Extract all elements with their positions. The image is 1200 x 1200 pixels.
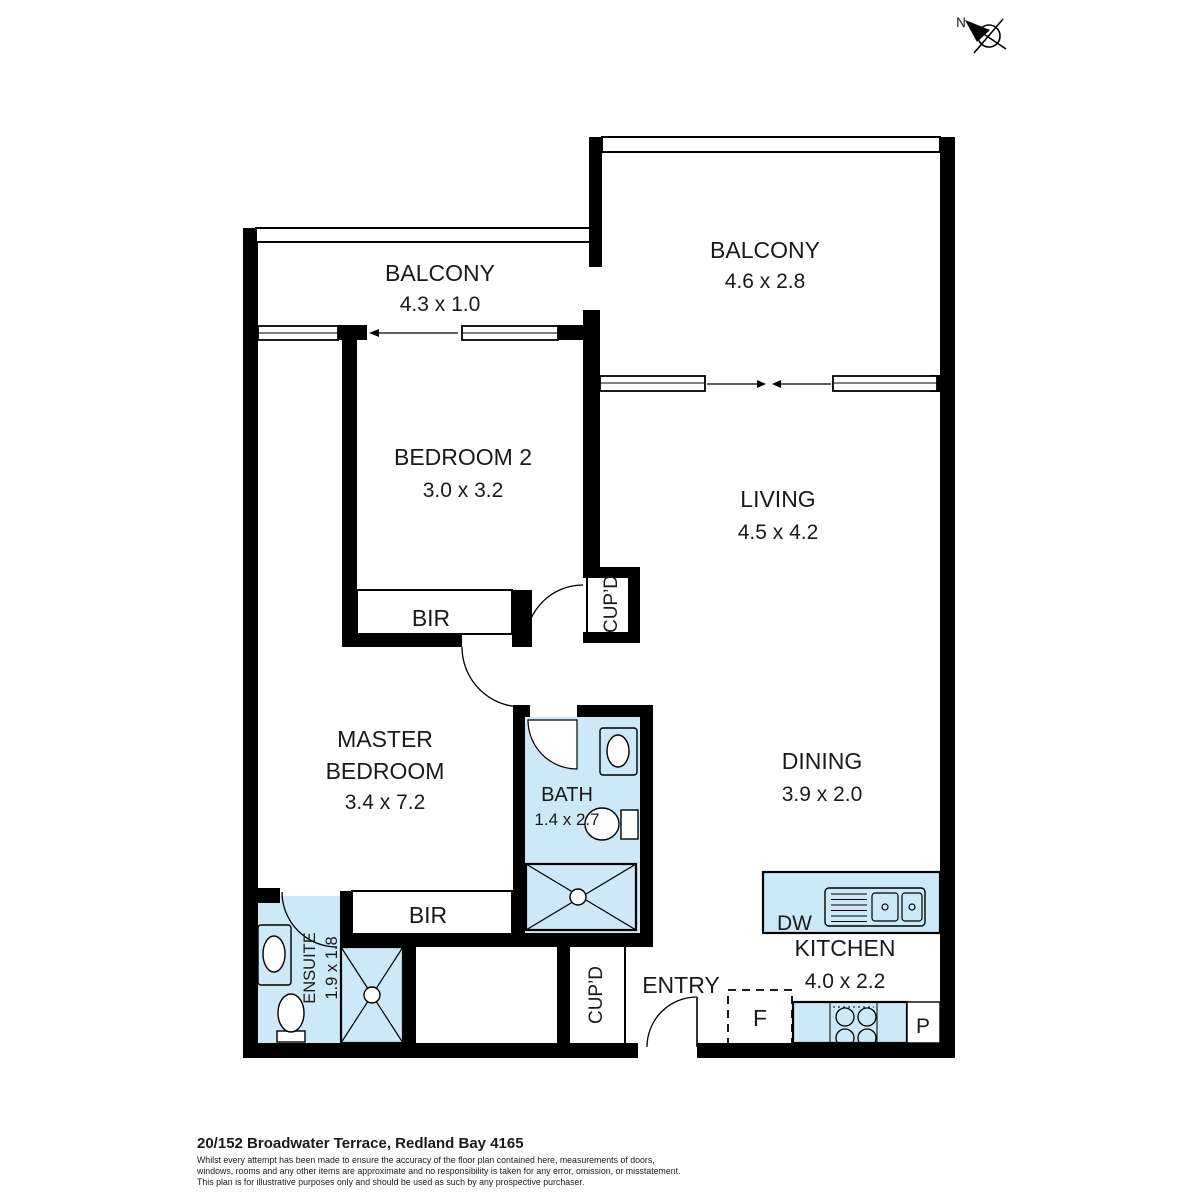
wall xyxy=(583,310,600,567)
room-kitchen-dims: 4.0 x 2.2 xyxy=(805,970,886,993)
room-bath-dims: 1.4 x 2.7 xyxy=(534,810,599,829)
floor-plan-svg: BALCONY 4.3 x 1.0 BALCONY 4.6 x 2.8 BEDR… xyxy=(0,0,1200,1200)
master-balcony-window-icon xyxy=(258,326,338,340)
room-balcony1-dims: 4.3 x 1.0 xyxy=(400,293,481,316)
wall xyxy=(342,633,462,647)
cupboard-upper-label: CUP’D xyxy=(601,575,622,633)
footer-disclaimer-line-3: This plan is for illustrative purposes o… xyxy=(197,1177,584,1187)
room-living-dims: 4.5 x 4.2 xyxy=(738,521,819,544)
wall xyxy=(628,567,640,643)
compass-icon: N xyxy=(956,15,1006,53)
ensuite-sink-icon xyxy=(258,925,291,985)
pantry-label: P xyxy=(916,1015,930,1038)
room-bedroom2-label: BEDROOM 2 xyxy=(394,444,532,470)
wall xyxy=(556,325,600,340)
sliding-door-arrow-icon xyxy=(757,380,766,388)
room-balcony2-dims: 4.6 x 2.8 xyxy=(725,270,806,293)
room-bedroom2-dims: 3.0 x 3.2 xyxy=(423,479,504,502)
sliding-door-arrow-icon xyxy=(772,380,781,388)
bath-shower-icon xyxy=(526,864,636,930)
wall xyxy=(340,891,352,947)
living-sliding-door-icon xyxy=(600,376,937,391)
fridge-label: F xyxy=(753,1005,767,1031)
wall xyxy=(340,933,653,947)
wall xyxy=(243,888,280,903)
bir-master-label: BIR xyxy=(409,902,447,928)
room-bath-label: BATH xyxy=(541,784,593,806)
room-dining-label: DINING xyxy=(782,748,863,774)
bath-sink-icon xyxy=(600,728,637,775)
dishwasher-label: DW xyxy=(777,912,812,935)
ensuite-shower-icon xyxy=(341,947,403,1043)
wall xyxy=(243,1043,638,1058)
sliding-door-arrow-icon xyxy=(369,329,379,337)
room-dining-dims: 3.9 x 2.0 xyxy=(782,783,863,806)
wall xyxy=(342,340,357,647)
footer-disclaimer-line-1: Whilst every attempt has been made to en… xyxy=(197,1155,655,1165)
bir-bedroom2-label: BIR xyxy=(412,605,450,631)
wall xyxy=(940,137,955,1058)
room-master-dims: 3.4 x 7.2 xyxy=(345,791,426,814)
door-arc-icon xyxy=(462,647,522,707)
room-master-label-line2: BEDROOM xyxy=(326,758,445,784)
wall xyxy=(403,947,416,1043)
wall xyxy=(243,228,258,1058)
room-master-label-line1: MASTER xyxy=(337,726,433,752)
room-ensuite-label: ENSUITE xyxy=(301,932,319,1004)
wall xyxy=(338,325,367,340)
floor-plan-page: BALCONY 4.3 x 1.0 BALCONY 4.6 x 2.8 BEDR… xyxy=(0,0,1200,1200)
room-ensuite-dims: 1.9 x 1.8 xyxy=(323,936,341,999)
cooktop-icon xyxy=(793,1002,907,1047)
door-arc-icon xyxy=(526,585,583,642)
room-kitchen-label: KITCHEN xyxy=(795,935,896,961)
wall xyxy=(512,891,523,947)
wall xyxy=(512,590,532,647)
entry-door-arc-icon xyxy=(647,997,697,1047)
bedroom2-sliding-door-icon xyxy=(369,326,558,340)
wall xyxy=(640,705,653,945)
cupboard-lower-label: CUP’D xyxy=(586,966,607,1024)
footer-address: 20/152 Broadwater Terrace, Redland Bay 4… xyxy=(197,1135,524,1152)
room-balcony1-label: BALCONY xyxy=(385,260,495,286)
room-balcony2-label: BALCONY xyxy=(710,237,820,263)
room-entry-label: ENTRY xyxy=(642,972,720,998)
wall xyxy=(589,137,602,267)
balustrade-icon xyxy=(256,228,590,242)
wall xyxy=(557,933,570,1043)
room-living-label: LIVING xyxy=(740,486,815,512)
footer-disclaimer-line-2: windows, rooms and any other items are a… xyxy=(196,1166,681,1176)
north-label: N xyxy=(956,15,966,30)
balustrade-icon xyxy=(602,137,940,152)
